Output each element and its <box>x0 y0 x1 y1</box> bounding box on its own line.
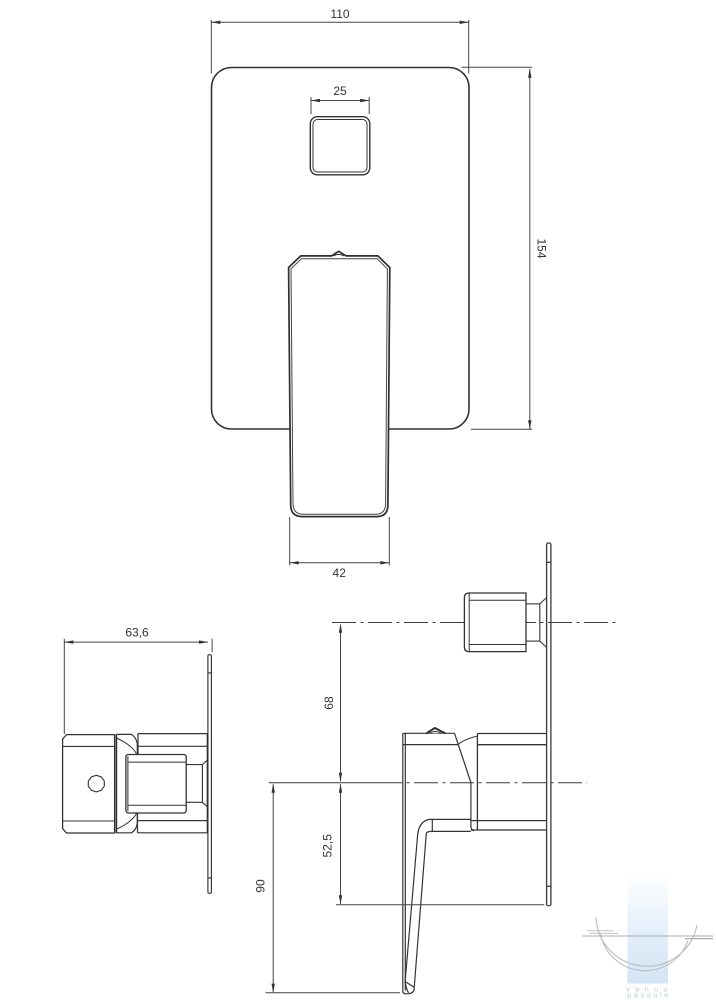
svg-text:90: 90 <box>254 879 268 893</box>
svg-text:68: 68 <box>322 696 336 710</box>
svg-text:25: 25 <box>333 84 347 98</box>
svg-text:42: 42 <box>333 566 347 580</box>
svg-text:52,5: 52,5 <box>321 834 335 858</box>
svg-text:154: 154 <box>535 238 549 258</box>
svg-text:63,6: 63,6 <box>125 626 149 640</box>
svg-text:110: 110 <box>330 7 349 21</box>
svg-text:pasaule: pasaule <box>627 991 671 1000</box>
